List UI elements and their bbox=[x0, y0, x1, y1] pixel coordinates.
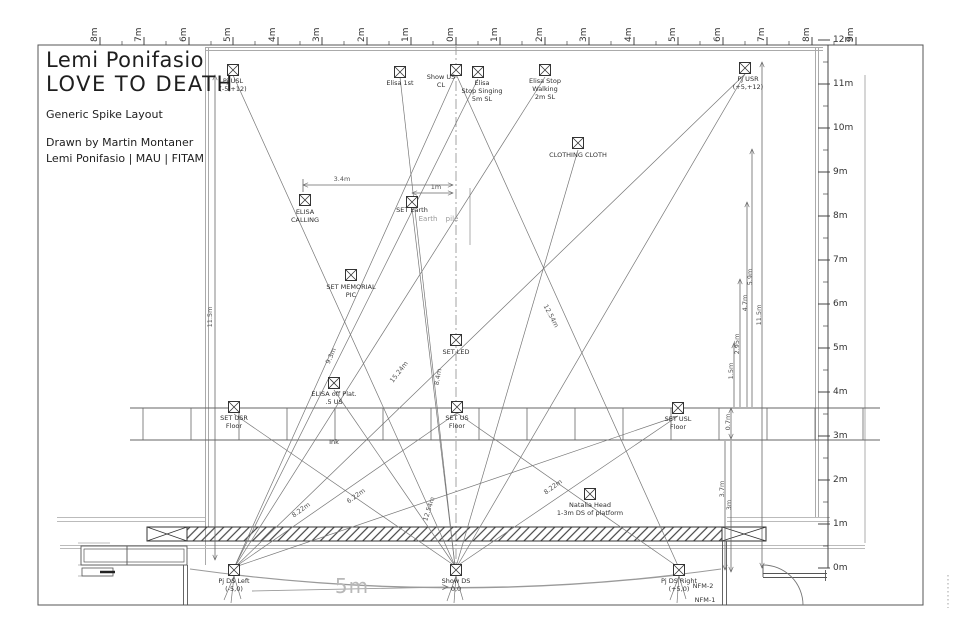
stage-walls bbox=[205, 47, 823, 565]
spike-marker-set-usr bbox=[229, 402, 240, 413]
proscenium-right bbox=[723, 541, 949, 608]
credit-line-2: Lemi Ponifasio | MAU | FITAM bbox=[46, 152, 234, 165]
spike-marker-natalia-head bbox=[585, 489, 596, 500]
drawing-subtitle: Generic Spike Layout bbox=[46, 108, 234, 121]
credit-line-1: Drawn by Martin Montaner bbox=[46, 136, 234, 149]
spike-marker-elisa-stop-singing bbox=[473, 67, 484, 78]
panel-band bbox=[130, 408, 880, 440]
spike-marker-elisa-off-plat bbox=[329, 378, 340, 389]
spike-marker-show-ds bbox=[451, 565, 462, 576]
spike-marker-set-earth bbox=[407, 197, 418, 208]
spike-marker-pj-ds-right bbox=[674, 565, 685, 576]
spike-marker-pj-ds-left bbox=[229, 565, 240, 576]
spike-marker-pj-usr bbox=[740, 63, 751, 74]
spike-marker-elisa-calling bbox=[300, 195, 311, 206]
spike-marker-set-usl bbox=[673, 403, 684, 414]
show-title: LOVE TO DEATH bbox=[46, 72, 234, 96]
drawing-sheet: Lemi Ponifasio LOVE TO DEATH Generic Spi… bbox=[0, 0, 960, 621]
spike-marker-clothing-cloth bbox=[573, 138, 584, 149]
sightline-fans bbox=[224, 74, 745, 603]
show-author: Lemi Ponifasio bbox=[46, 48, 234, 72]
spike-marker-set-led bbox=[451, 335, 462, 346]
title-block: Lemi Ponifasio LOVE TO DEATH Generic Spi… bbox=[46, 48, 234, 165]
spike-marker-elisa-stop-walking bbox=[540, 65, 551, 76]
spike-marker-set-memorial-pic bbox=[346, 270, 357, 281]
spike-marker-set-us bbox=[452, 402, 463, 413]
dimension-lines bbox=[215, 62, 762, 572]
platform bbox=[147, 527, 766, 541]
spike-marker-elisa-1st bbox=[395, 67, 406, 78]
spike-marker-show-us bbox=[451, 65, 462, 76]
